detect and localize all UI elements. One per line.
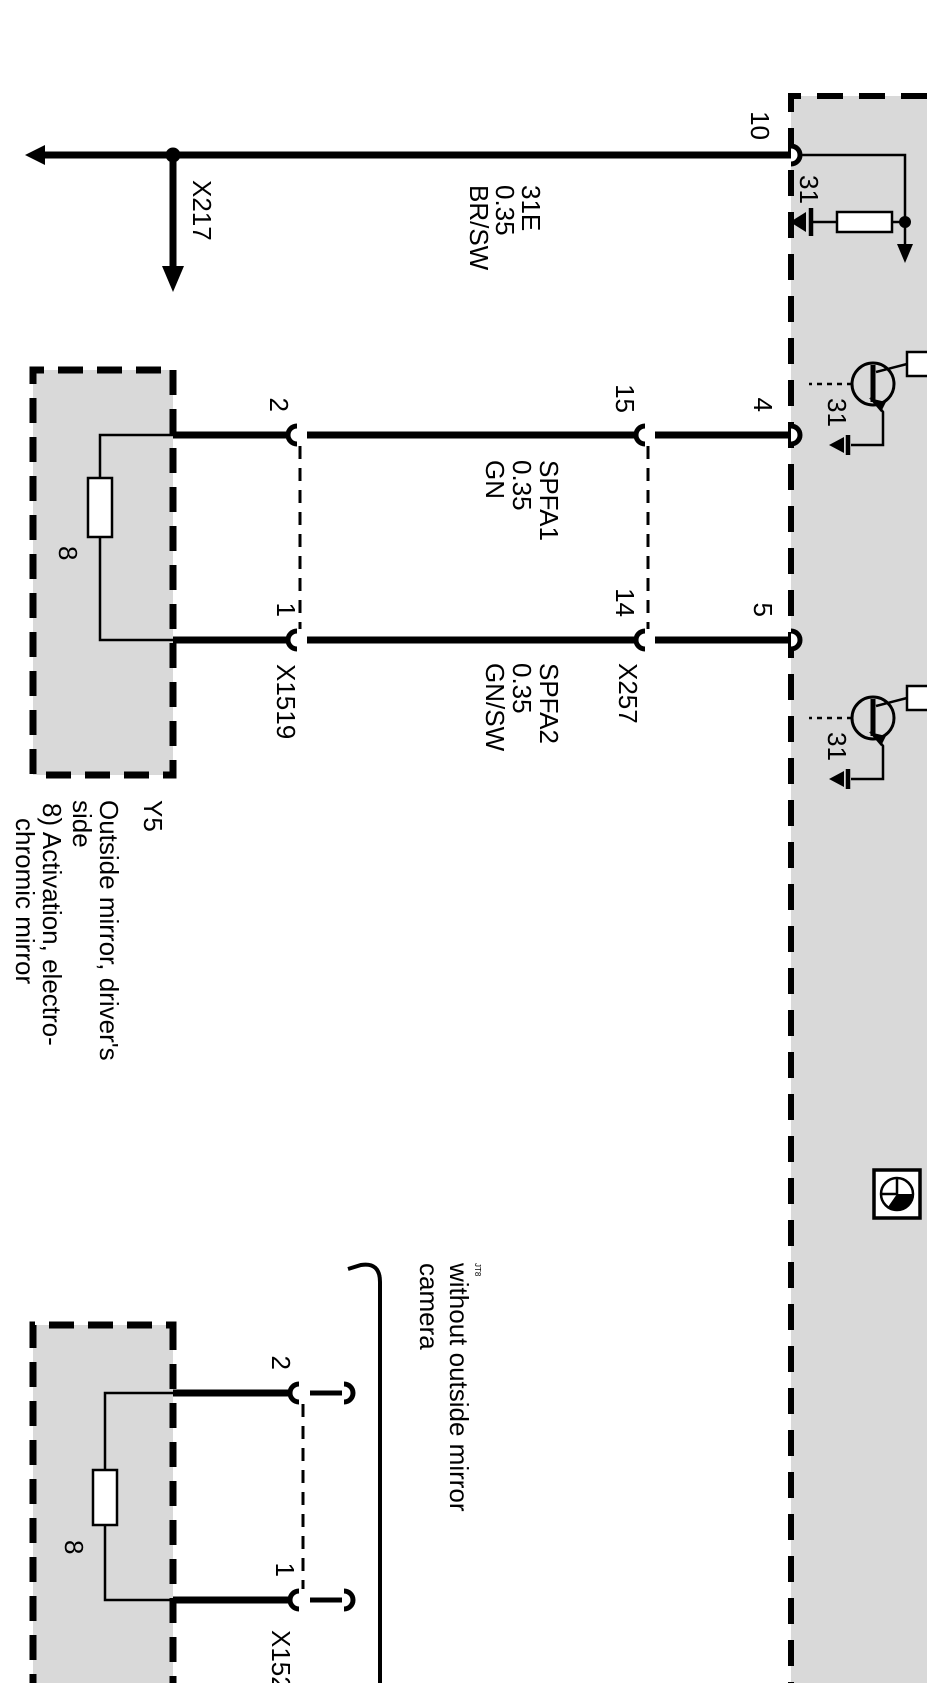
component-y5-outside-mirror: 8 Y5 Outside mirror, driver's side 8) Ac… [10, 370, 173, 1061]
x217-arrow-icon [162, 266, 184, 292]
variant-line2: camera [414, 1263, 444, 1350]
wire1-color: BR/SW [464, 185, 494, 271]
module-pin-10-label: 10 [745, 111, 775, 140]
wire2-color: GN [480, 460, 510, 499]
ground-label: 31 [822, 732, 852, 761]
mirror2-element-label: 8 [59, 1540, 89, 1554]
resistor-icon [907, 352, 927, 376]
wire-end-arrow-icon [25, 145, 45, 165]
y5-id-label: Y5 [138, 800, 168, 832]
x257-pin15-label: 15 [610, 384, 640, 413]
variant-brace-icon [348, 1265, 380, 1683]
y5-element-label: 8 [53, 546, 83, 560]
wire-spfa1: SPFA1 0.35 GN [173, 435, 791, 541]
variant-annotation: JT8 without outside mirror camera [348, 1262, 482, 1683]
ground-label: 31 [822, 398, 852, 427]
module-pin-5-label: 5 [748, 603, 778, 617]
resistor-icon [88, 478, 112, 537]
wire2-circuit: SPFA1 [534, 460, 564, 541]
y5-name-line1: Outside mirror, driver's [94, 800, 124, 1061]
ground-label: 31 [794, 175, 824, 204]
module-pin-10-socket [791, 146, 800, 164]
wire1-circuit: 31E [516, 185, 546, 231]
component-mirror-2: 8 [33, 1325, 173, 1683]
wire3-gauge: 0.35 [507, 663, 537, 714]
resistor-icon [907, 686, 927, 710]
rotated-schematic-stage: 31 31 31 [0, 0, 927, 1683]
y5-box [33, 370, 173, 775]
x1519-pin2-label: 2 [264, 398, 294, 412]
y5-note-line1: 8) Activation, electro- [37, 803, 67, 1046]
module-pin-5-socket [791, 631, 800, 649]
control-module: 31 31 31 [745, 96, 927, 1683]
module-function-symbol [874, 1170, 920, 1218]
x1519-pin1-socket [288, 631, 297, 649]
x1519-label: X1519 [271, 664, 301, 739]
wire-31e: X217 31E 0.35 BR/SW [25, 145, 791, 292]
wire-spfa2: SPFA2 0.35 GN/SW [173, 640, 791, 752]
wire3-circuit: SPFA2 [534, 663, 564, 744]
x152-mate-pin1-icon [344, 1591, 353, 1609]
x152-pin1-socket [290, 1591, 299, 1609]
wiring-diagram: 31 31 31 [0, 0, 927, 1683]
wire1-gauge: 0.35 [490, 185, 520, 236]
connector-x1519: 2 1 X1519 [264, 398, 301, 740]
x152-pin2-label: 2 [266, 1356, 296, 1370]
x257-pin15-socket [636, 426, 645, 444]
resistor-icon [93, 1470, 117, 1525]
y5-name-line2: side [67, 800, 97, 848]
x257-label: X257 [613, 663, 643, 724]
resistor-icon [837, 212, 892, 232]
x152-label: X152 [266, 1630, 296, 1683]
x152-pin1-label: 1 [270, 1563, 300, 1577]
variant-footnote-mark: JT8 [473, 1263, 482, 1277]
wire3-color: GN/SW [480, 663, 510, 752]
wire2-gauge: 0.35 [507, 460, 537, 511]
connector-x152: 2 1 X152 [173, 1356, 353, 1683]
x217-label: X217 [187, 180, 217, 241]
module-pin-4-socket [791, 426, 800, 444]
x1519-pin1-label: 1 [271, 603, 301, 617]
x152-mate-pin2-icon [344, 1384, 353, 1402]
x257-pin14-socket [636, 631, 645, 649]
module-body [791, 96, 927, 1683]
x257-pin14-label: 14 [610, 588, 640, 617]
variant-line1: without outside mirror [444, 1262, 474, 1512]
y5-note-line2: chromic mirror [10, 818, 40, 984]
module-pin-4-label: 4 [748, 398, 778, 412]
x152-pin2-socket [290, 1384, 299, 1402]
x1519-pin2-socket [288, 426, 297, 444]
